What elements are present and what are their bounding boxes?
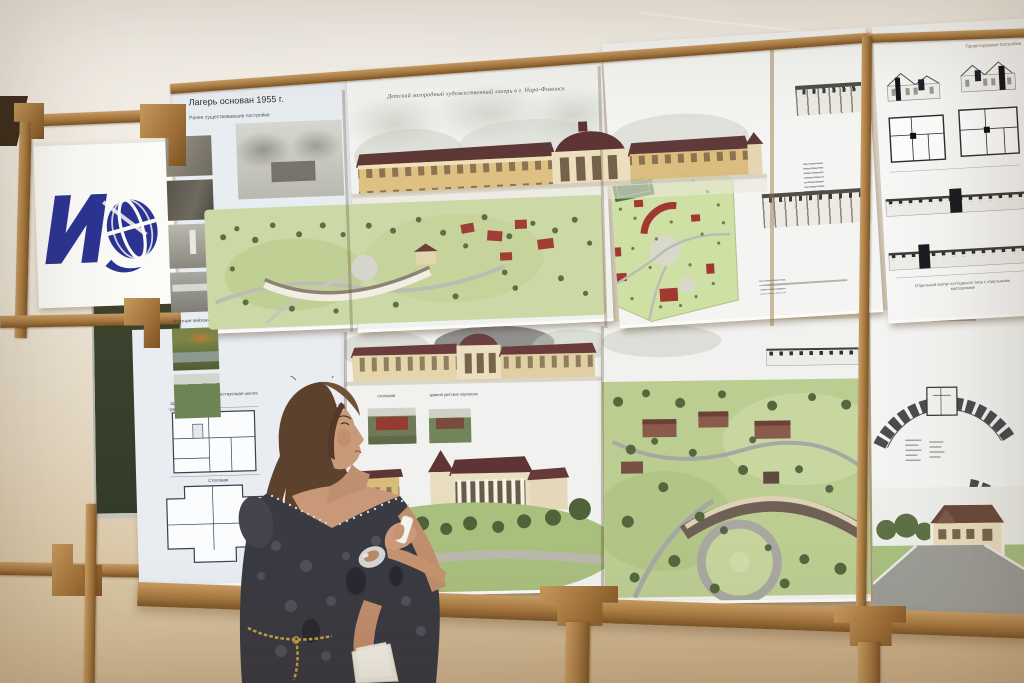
haze-trees [235,120,343,174]
board-projected-buildings: Проектируемые постройки [872,19,1024,324]
curved-floorplan-drawing [870,308,1024,622]
seam-cd-wood [770,44,774,326]
siteplan-birdseye-rendering [202,193,608,332]
logo-tail [105,259,141,273]
floor-plan-2 [959,107,1019,156]
photo-landscape-1-water [173,351,219,363]
elevation-strip-c1 [762,187,872,228]
photo-landscape-2 [173,373,221,419]
floor-plan-1 [889,115,945,162]
legend-lines-c [803,162,825,193]
board-curved-plan [870,308,1024,625]
photo-scene: существующая школа Здание спортивно-разв… [0,0,1024,683]
logo-letter-i [43,194,109,264]
plan-legend-lines [905,439,944,461]
logo-globe [100,193,165,264]
papers [352,642,398,683]
globe-logo-icon [40,172,170,288]
logo-banner [33,140,177,309]
board-a-title: Лагерь основан 1955 г. [188,94,283,108]
street-rendering [872,486,1024,618]
cheek-shade [337,429,351,447]
projected-drawings [872,19,1024,321]
photo-landscape-1-autumn [187,331,215,344]
seam-fg [601,326,604,594]
post-bottom-center [565,622,590,683]
woman-presenter [236,376,456,683]
cottage-elevation-2 [960,61,1015,92]
long-elevation-1 [885,185,1024,217]
photo-old-3-tower [189,230,196,254]
post-bottom-right [858,642,880,683]
photos-label: Местные пейзажи [172,317,210,323]
cottage-row-drawing [766,348,858,365]
long-elevation-2 [888,239,1024,271]
board-a-subtitle: Ранее существовавшие постройки [189,112,269,121]
aerial-rendering [601,318,871,602]
board-aerial-view [601,318,871,605]
elevation-strip-c2 [795,82,863,116]
cottage-elevation-1 [887,71,940,101]
